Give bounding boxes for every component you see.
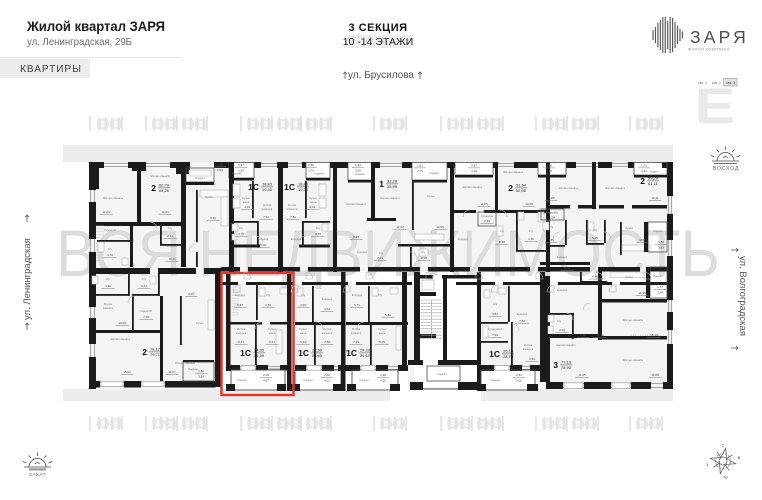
svg-text:С/у: С/у [549, 225, 554, 229]
svg-text:0,90: 0,90 [546, 164, 552, 168]
svg-text:14,61: 14,61 [161, 210, 169, 214]
svg-text:10,88: 10,88 [525, 202, 533, 206]
svg-text:Жилой квартал ЗАРЯ: Жилой квартал ЗАРЯ [26, 18, 165, 34]
svg-text:В: В [738, 456, 741, 460]
svg-text:Жилая комната: Жилая комната [175, 361, 195, 365]
svg-text:1,82: 1,82 [658, 240, 664, 244]
svg-text:Жилая: Жилая [237, 327, 246, 331]
svg-text:26,67: 26,67 [360, 353, 371, 358]
svg-text:3,16: 3,16 [580, 333, 586, 337]
svg-text:2,28: 2,28 [380, 373, 386, 377]
svg-text:2,71: 2,71 [167, 234, 173, 238]
svg-text:1,80: 1,80 [198, 369, 204, 373]
svg-text:ЗАРЯ: ЗАРЯ [690, 27, 749, 47]
svg-text:1,93: 1,93 [238, 168, 244, 172]
svg-text:2,06: 2,06 [324, 373, 330, 377]
svg-text:Кухня: Кухня [299, 327, 307, 331]
svg-text:Лоджия: Лоджия [232, 172, 242, 176]
svg-text:Кухня: Кухня [625, 275, 633, 279]
svg-text:4,65: 4,65 [528, 237, 534, 241]
svg-text:Коридор: Коридор [557, 288, 568, 292]
svg-text:32,28: 32,28 [387, 179, 398, 184]
svg-text:Коридор: Коридор [517, 312, 528, 316]
svg-text:4,40: 4,40 [592, 275, 598, 279]
svg-text:3,59: 3,59 [198, 374, 204, 378]
svg-text:Лоджия: Лоджия [303, 378, 313, 382]
svg-text:4,04: 4,04 [244, 205, 250, 209]
svg-text:5,64: 5,64 [385, 313, 391, 317]
svg-text:Коридор: Коридор [322, 297, 333, 301]
svg-text:61,11: 61,11 [648, 181, 658, 186]
svg-text:4,49: 4,49 [529, 357, 535, 361]
svg-text:11,89: 11,89 [547, 196, 555, 200]
svg-text:1С: 1С [298, 348, 309, 358]
svg-text:5,87: 5,87 [492, 312, 498, 316]
svg-text:Жилая комната: Жилая комната [346, 202, 366, 206]
svg-text:5,20: 5,20 [217, 168, 223, 172]
svg-text:10 -14 ЭТАЖИ: 10 -14 ЭТАЖИ [343, 36, 414, 48]
svg-text:ул. Ленинградская: ул. Ленинградская [22, 238, 33, 320]
svg-text:12,24: 12,24 [102, 210, 110, 214]
svg-text:Кухня: Кухня [268, 327, 276, 331]
svg-text:Кухня: Кухня [196, 321, 204, 325]
svg-text:Гардероб: Гардероб [104, 228, 116, 232]
svg-text:ул. Волгоградская: ул. Волгоградская [737, 256, 748, 336]
svg-text:Лоджия: Лоджия [195, 176, 205, 180]
svg-text:11,05: 11,05 [480, 202, 488, 206]
svg-text:4,70: 4,70 [107, 253, 113, 257]
svg-text:3: 3 [553, 360, 558, 370]
svg-text:4,10: 4,10 [105, 284, 111, 288]
svg-text:Жилая комната: Жилая комната [110, 337, 130, 341]
svg-text:С/у: С/у [593, 228, 598, 232]
svg-text:3,54: 3,54 [657, 290, 663, 294]
svg-text:С/у: С/у [421, 250, 426, 254]
svg-text:2,55: 2,55 [548, 238, 554, 242]
svg-text:Кладовая: Кладовая [546, 211, 559, 215]
svg-text:Коридор: Коридор [458, 237, 469, 241]
svg-text:64,26: 64,26 [159, 188, 170, 193]
svg-text:ниша: ниша [310, 201, 317, 204]
svg-text:ниша: ниша [269, 332, 276, 335]
svg-text:ул. Ленинградская, 29Б: ул. Ленинградская, 29Б [27, 36, 132, 48]
svg-text:4,57: 4,57 [263, 378, 269, 382]
svg-text:комната: комната [103, 307, 114, 310]
svg-text:5,02: 5,02 [516, 378, 522, 382]
svg-text:2: 2 [508, 183, 513, 193]
svg-text:2,95: 2,95 [421, 256, 427, 260]
svg-text:0,90: 0,90 [308, 163, 314, 167]
svg-text:З: З [706, 463, 708, 467]
svg-text:Жилая: Жилая [323, 327, 332, 331]
svg-text:7,84: 7,84 [519, 319, 525, 323]
svg-text:5,08: 5,08 [260, 243, 266, 247]
svg-text:1,79: 1,79 [546, 169, 552, 173]
svg-text:5,71: 5,71 [354, 303, 360, 307]
svg-text:16,88: 16,88 [651, 373, 659, 377]
svg-text:Жилая: Жилая [524, 343, 533, 347]
svg-text:4,55: 4,55 [380, 378, 386, 382]
svg-text:51,54: 51,54 [516, 183, 527, 188]
svg-text:комната: комната [236, 332, 247, 335]
svg-text:1,60: 1,60 [217, 163, 223, 167]
svg-text:2,71: 2,71 [417, 169, 423, 173]
svg-text:12,62: 12,62 [396, 225, 404, 229]
svg-text:0,97: 0,97 [471, 164, 477, 168]
svg-text:комната: комната [523, 348, 534, 351]
svg-text:Кухня: Кухня [625, 226, 633, 230]
svg-text:15,91: 15,91 [123, 370, 131, 374]
svg-text:ВОСХОД: ВОСХОД [713, 166, 740, 172]
svg-text:16,11: 16,11 [651, 196, 659, 200]
svg-text:1,34: 1,34 [484, 219, 490, 223]
svg-text:18,43: 18,43 [262, 182, 273, 187]
svg-text:10,55: 10,55 [638, 291, 646, 295]
svg-text:9,25: 9,25 [188, 292, 194, 296]
svg-text:5,67: 5,67 [237, 303, 243, 307]
svg-text:Жилая комната: Жилая комната [503, 170, 523, 174]
svg-text:0,97: 0,97 [238, 163, 244, 167]
svg-text:5,05: 5,05 [379, 340, 385, 344]
svg-text:10,50: 10,50 [118, 321, 126, 325]
svg-text:7,68: 7,68 [324, 340, 330, 344]
svg-text:Жилая комната: Жилая комната [462, 185, 482, 189]
svg-text:С/у: С/у [316, 226, 321, 230]
svg-text:Коридор: Коридор [557, 255, 568, 259]
svg-text:77,13: 77,13 [561, 360, 572, 365]
svg-text:С/у: С/у [239, 226, 244, 230]
svg-text:Лоджия: Лоджия [188, 367, 198, 371]
svg-text:Лоджия: Лоджия [314, 172, 324, 176]
svg-text:Е: Е [695, 78, 735, 134]
svg-text:Кухня: Кухня [242, 196, 250, 200]
svg-text:13,55: 13,55 [436, 225, 444, 229]
svg-text:С/у: С/у [557, 319, 562, 323]
svg-text:С/у: С/у [168, 226, 173, 230]
svg-text:11,07: 11,07 [168, 370, 176, 374]
svg-text:С/у: С/у [378, 293, 383, 297]
svg-text:ЖИЛОЙ КОМПЛЕКС: ЖИЛОЙ КОМПЛЕКС [688, 48, 730, 52]
svg-text:1,71: 1,71 [641, 164, 647, 168]
svg-text:1: 1 [379, 179, 384, 189]
svg-text:7,04: 7,04 [377, 256, 383, 260]
svg-text:Лоджия: Лоджия [359, 378, 369, 382]
svg-text:ниша: ниша [300, 332, 307, 335]
svg-text:4,67: 4,67 [141, 284, 147, 288]
svg-text:Жилая: Жилая [104, 302, 113, 306]
svg-text:1,93: 1,93 [471, 169, 477, 173]
svg-text:комната: комната [287, 208, 298, 211]
svg-text:3,42: 3,42 [641, 169, 647, 173]
svg-text:С/у: С/у [594, 270, 599, 274]
svg-text:С/у: С/у [529, 229, 534, 233]
svg-text:Лоджия: Лоджия [237, 378, 247, 382]
svg-text:7,99: 7,99 [353, 340, 359, 344]
svg-text:3,70: 3,70 [238, 232, 244, 236]
svg-text:4,19: 4,19 [559, 328, 565, 332]
svg-text:Кухня: Кухня [309, 196, 317, 200]
svg-text:Лоджия: Лоджия [653, 274, 663, 278]
svg-text:Кухня: Кухня [378, 327, 386, 331]
svg-text:2: 2 [151, 183, 156, 193]
svg-text:Жилая комната: Жилая комната [103, 196, 123, 200]
svg-text:4,12: 4,12 [324, 378, 330, 382]
svg-text:Жилая комната: Жилая комната [605, 186, 625, 190]
svg-text:Коридор: Коридор [352, 293, 363, 297]
svg-text:2,51: 2,51 [516, 373, 522, 377]
svg-text:Кухня: Кухня [205, 195, 213, 199]
svg-text:С/у: С/у [266, 293, 271, 297]
svg-text:8,73: 8,73 [238, 340, 244, 344]
svg-text:15,51: 15,51 [596, 333, 604, 337]
svg-text:Жилая: Жилая [288, 203, 297, 207]
svg-text:Жилая комната: Жилая комната [150, 174, 170, 178]
svg-text:Лоджия: Лоджия [429, 171, 439, 175]
svg-text:Лоджия: Лоджия [355, 172, 365, 176]
svg-text:Ю: Ю [724, 476, 728, 480]
svg-text:4,59: 4,59 [265, 303, 271, 307]
svg-text:Лоджия: Лоджия [650, 171, 659, 174]
svg-text:1С: 1С [489, 349, 500, 359]
svg-text:7,49: 7,49 [492, 333, 498, 337]
svg-text:Коридор: Коридор [357, 250, 368, 254]
svg-text:С/у: С/у [500, 229, 505, 233]
svg-text:3,63: 3,63 [658, 245, 664, 249]
svg-text:Гардероб: Гардероб [140, 309, 152, 313]
svg-text:Жилая комната: Жилая комната [623, 358, 643, 362]
svg-text:5,25: 5,25 [592, 236, 598, 240]
svg-text:Лоджия: Лоджия [490, 378, 500, 382]
svg-text:1,79: 1,79 [308, 168, 314, 172]
svg-text:3 СЕКЦИЯ: 3 СЕКЦИЯ [348, 22, 407, 34]
svg-text:62,79: 62,79 [159, 183, 170, 188]
svg-text:Кладовая: Кладовая [481, 214, 494, 218]
svg-text:Коридор: Коридор [235, 293, 246, 297]
svg-text:ниша: ниша [379, 332, 386, 335]
svg-text:Кухня ниша: Кухня ниша [488, 327, 503, 331]
svg-text:4,15: 4,15 [300, 303, 306, 307]
svg-text:78,12: 78,12 [150, 347, 161, 352]
svg-text:Лоджия: Лоджия [653, 229, 663, 233]
svg-text:1С: 1С [346, 348, 357, 358]
svg-text:4,04: 4,04 [309, 205, 315, 209]
svg-text:7,61: 7,61 [263, 215, 269, 219]
svg-text:Коридор: Коридор [291, 237, 302, 241]
svg-text:15,19: 15,19 [650, 333, 658, 337]
svg-text:КВАРТИРЫ: КВАРТИРЫ [20, 64, 82, 75]
svg-text:С/у: С/у [142, 277, 147, 281]
svg-text:1,77: 1,77 [657, 285, 663, 289]
svg-text:Жилая комната: Жилая комната [556, 343, 576, 347]
svg-text:Жилая комната: Жилая комната [380, 196, 400, 200]
svg-text:ЗАКАТ: ЗАКАТ [29, 472, 46, 478]
svg-text:комната: комната [262, 208, 273, 211]
svg-text:9,94: 9,94 [210, 216, 216, 220]
svg-text:ниша: ниша [243, 201, 250, 204]
svg-text:Коридор: Коридор [258, 237, 269, 241]
svg-text:1С: 1С [240, 348, 251, 358]
svg-text:21,59: 21,59 [312, 348, 323, 353]
svg-text:комната: комната [351, 332, 362, 335]
svg-text:Лоджия: Лоджия [437, 372, 447, 376]
svg-text:19,30: 19,30 [298, 187, 309, 192]
svg-text:Жилая: Жилая [263, 203, 272, 207]
svg-text:3,20: 3,20 [355, 168, 361, 172]
svg-text:1,54: 1,54 [549, 216, 555, 220]
svg-text:19,40: 19,40 [262, 187, 273, 192]
svg-text:С/у: С/у [108, 247, 113, 251]
svg-text:С/у: С/у [301, 293, 306, 297]
svg-text:Кухня: Кухня [427, 194, 435, 198]
svg-text:Жилая комната: Жилая комната [623, 318, 643, 322]
svg-text:4,42: 4,42 [324, 307, 330, 311]
svg-text:Жилая комната: Жилая комната [558, 186, 578, 190]
svg-text:С/у: С/у [106, 277, 111, 281]
svg-text:С: С [722, 444, 725, 448]
svg-text:33,99: 33,99 [387, 184, 398, 189]
svg-text:7,59: 7,59 [143, 315, 149, 319]
svg-text:10,84: 10,84 [639, 238, 647, 242]
svg-text:8,28: 8,28 [499, 240, 505, 244]
svg-text:14,21: 14,21 [168, 257, 176, 261]
svg-text:5,51: 5,51 [269, 340, 275, 344]
svg-text:3,70: 3,70 [315, 232, 321, 236]
svg-text:78,90: 78,90 [561, 365, 572, 370]
svg-text:1,22: 1,22 [417, 164, 423, 168]
svg-text:5,34: 5,34 [300, 340, 306, 344]
svg-text:1С: 1С [284, 182, 295, 192]
svg-text:79,71: 79,71 [150, 352, 161, 357]
svg-text:2,29: 2,29 [263, 373, 269, 377]
svg-text:С/у: С/у [379, 251, 384, 255]
svg-text:18,40: 18,40 [298, 182, 309, 187]
svg-text:Коридор: Коридор [167, 244, 178, 248]
svg-text:ул. Брусилова: ул. Брусилова [348, 70, 414, 81]
svg-text:1,60: 1,60 [355, 163, 361, 167]
svg-text:52,56: 52,56 [516, 188, 527, 193]
svg-text:Жилая: Жилая [352, 327, 361, 331]
svg-text:комната: комната [322, 332, 333, 335]
svg-text:24,39: 24,39 [360, 348, 371, 353]
svg-text:С/у: С/у [493, 302, 498, 306]
svg-text:2: 2 [142, 347, 147, 357]
svg-text:23,65: 23,65 [312, 353, 323, 358]
svg-text:11,51: 11,51 [563, 266, 571, 270]
svg-text:11,45: 11,45 [578, 373, 586, 377]
svg-text:7,61: 7,61 [290, 215, 296, 219]
svg-text:8,28: 8,28 [353, 235, 359, 239]
